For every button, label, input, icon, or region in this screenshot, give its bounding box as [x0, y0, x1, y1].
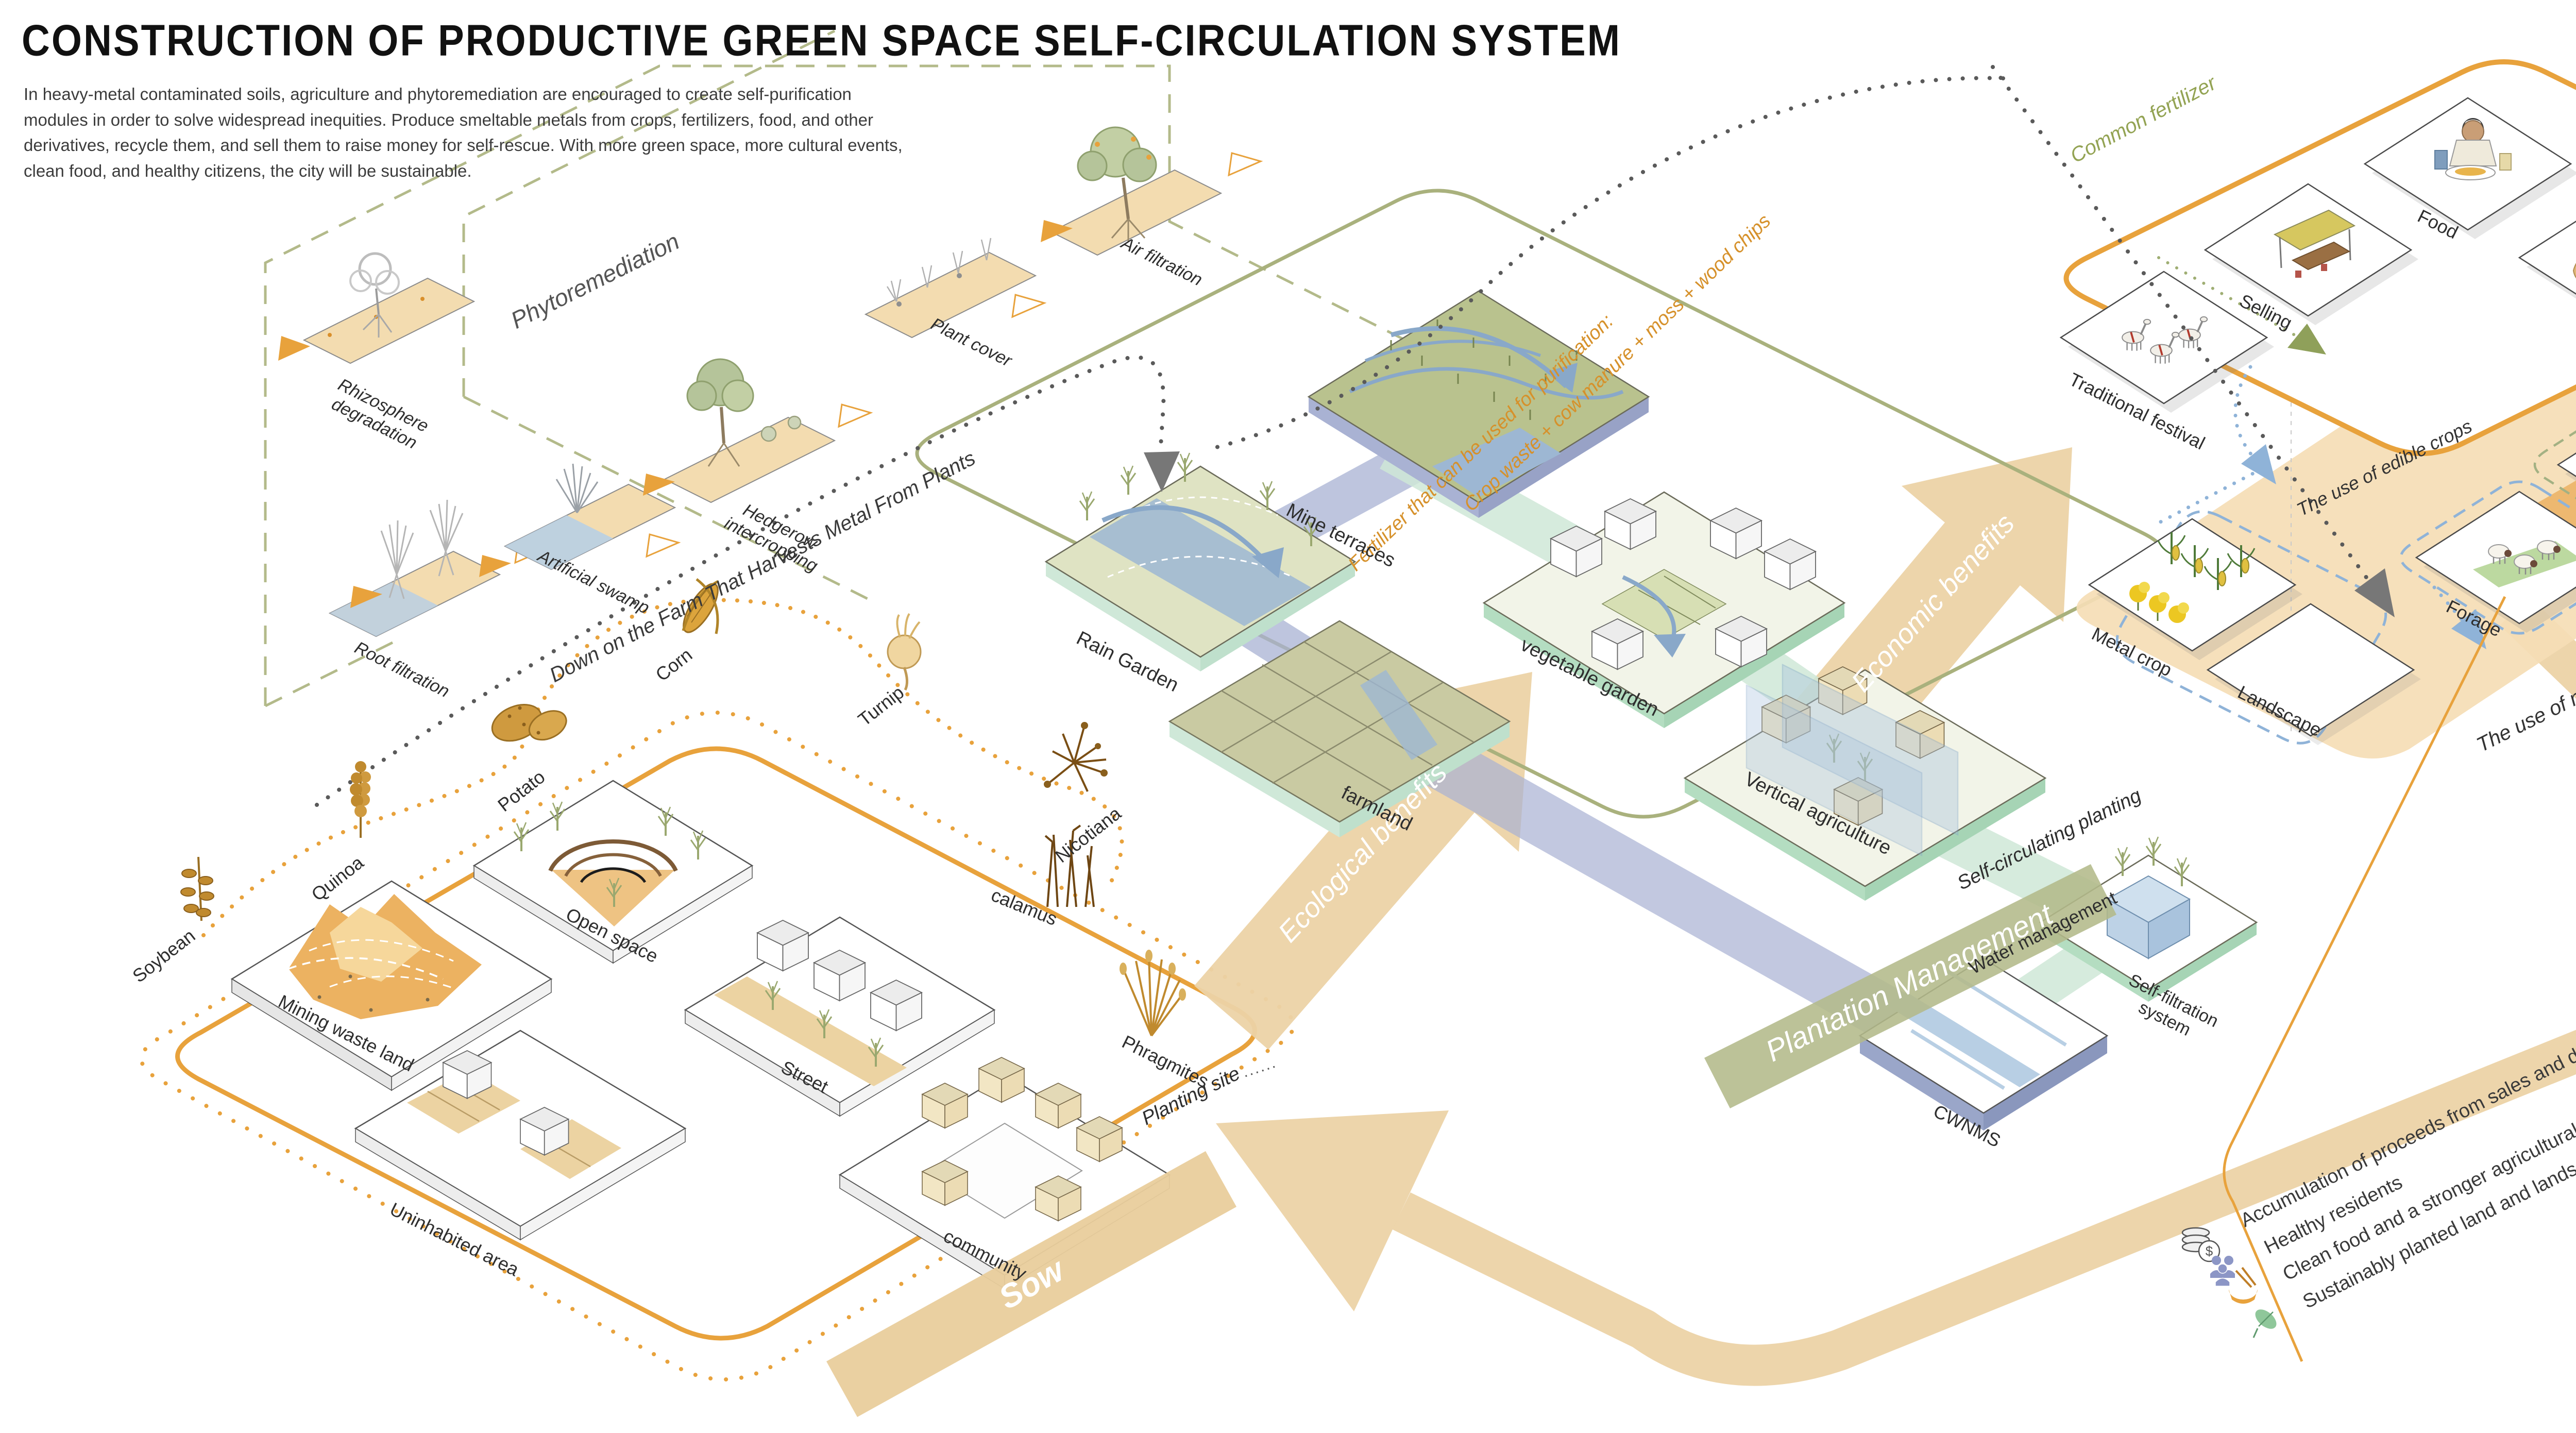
hedgerow-intercropping-module — [643, 359, 871, 502]
leaf-icon — [2252, 1306, 2280, 1338]
quinoa-glyph — [350, 761, 371, 838]
turnip-glyph — [888, 614, 921, 690]
phragmites-glyph — [1120, 950, 1186, 1036]
rhizosphere-degradation-module — [278, 254, 474, 363]
diagram-graphics: $ — [0, 0, 2576, 1433]
plant-cover-module — [866, 238, 1044, 338]
people-icon — [2210, 1256, 2235, 1286]
page-title: CONSTRUCTION OF PRODUCTIVE GREEN SPACE S… — [22, 15, 1621, 65]
soybean-glyph — [181, 857, 214, 921]
svg-text:$: $ — [2206, 1243, 2213, 1259]
coins-icon: $ — [2182, 1228, 2219, 1261]
root-filtration-module — [330, 500, 547, 636]
air-filtration-module — [1041, 127, 1261, 255]
nicotiana-glyph — [1044, 722, 1108, 791]
intro-paragraph: In heavy-metal contaminated soils, agric… — [24, 81, 915, 183]
potato-glyph — [487, 698, 571, 748]
diagram-canvas: $ CONSTRUCTION OF PRODUCTIVE GREEN SPACE… — [0, 0, 2576, 1433]
